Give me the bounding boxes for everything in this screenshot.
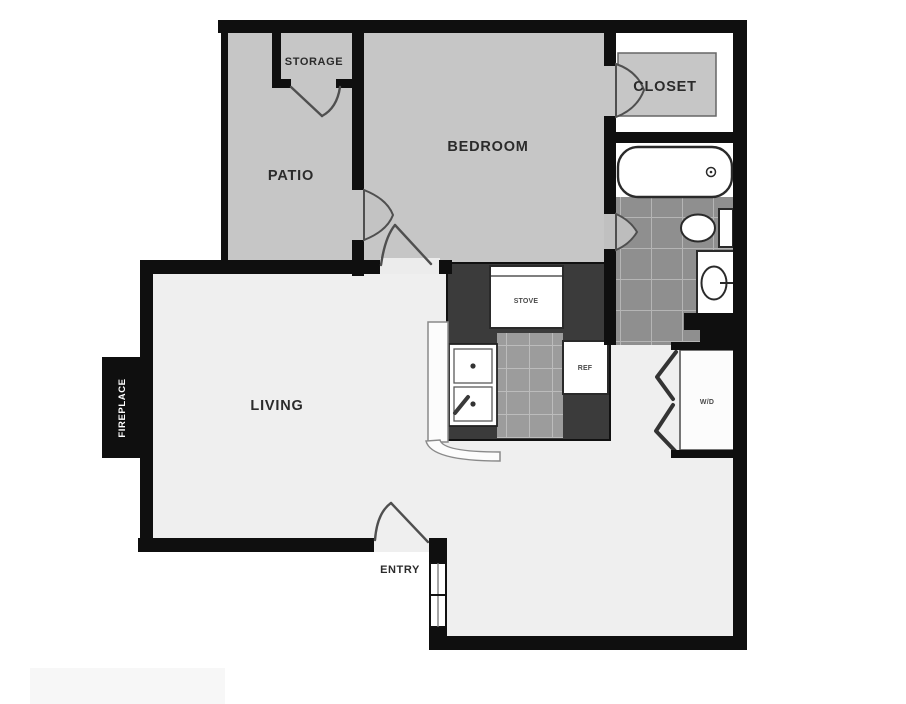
sink-drain-top [470, 363, 475, 368]
wall-entry-upper [429, 538, 447, 566]
wall-patio-bedroom-upper [352, 28, 364, 190]
bar-counter [428, 322, 448, 442]
wall-laundry-top [671, 342, 737, 350]
fireplace-label: FIREPLACE [117, 378, 128, 437]
doorway-bedroom-bath [604, 214, 616, 250]
doorway-patio-bedroom [353, 188, 364, 240]
sink-drain-bottom [470, 401, 475, 406]
kitchen [426, 263, 610, 461]
bathtub-drain-dot [710, 171, 713, 174]
wall-bedroom-closet-b [604, 116, 616, 214]
wall-kitchen-bath [604, 263, 616, 345]
entry-label: ENTRY [380, 564, 420, 576]
toilet-tank [719, 209, 733, 247]
wall-storage-left [272, 28, 281, 87]
wall-bottom-right [429, 636, 747, 650]
wall-bedroom-closet-a [604, 28, 616, 66]
wall-patio-left [221, 20, 228, 272]
closet-label: CLOSET [633, 79, 697, 95]
storage-label: STORAGE [285, 56, 343, 68]
doorway-storage [291, 79, 336, 88]
floor-plan-canvas: STORAGE PATIO BEDROOM CLOSET LIVING ENTR… [0, 0, 906, 704]
wall-laundry-bottom [671, 450, 737, 458]
wall-living-top [140, 260, 380, 274]
refrigerator-label: REF [578, 365, 593, 372]
wall-top [218, 20, 747, 33]
wall-living-bottom [138, 538, 374, 552]
patio-label: PATIO [268, 168, 314, 184]
wall-bath-lower [700, 313, 737, 345]
doorway-bedroom-closet [604, 66, 616, 117]
wall-bath-lower-stub [684, 313, 702, 330]
bedroom-label: BEDROOM [447, 139, 528, 155]
toilet [681, 215, 715, 242]
watermark-artifact [30, 668, 225, 704]
doorway-bedroom-living [380, 258, 440, 274]
stove-label: STOVE [514, 298, 539, 305]
wall-living-top-stub [439, 260, 452, 274]
kitchen-tile-grid [497, 333, 563, 438]
doorway-entry [374, 538, 429, 552]
wall-storage-bottom-left [272, 79, 291, 88]
entry-window [430, 563, 446, 627]
living-label: LIVING [250, 398, 303, 414]
floor-plan-drawing: STORAGE PATIO BEDROOM CLOSET LIVING ENTR… [0, 0, 906, 704]
wall-closet-bottom [604, 132, 737, 143]
washer-dryer-label: W/D [700, 399, 714, 406]
